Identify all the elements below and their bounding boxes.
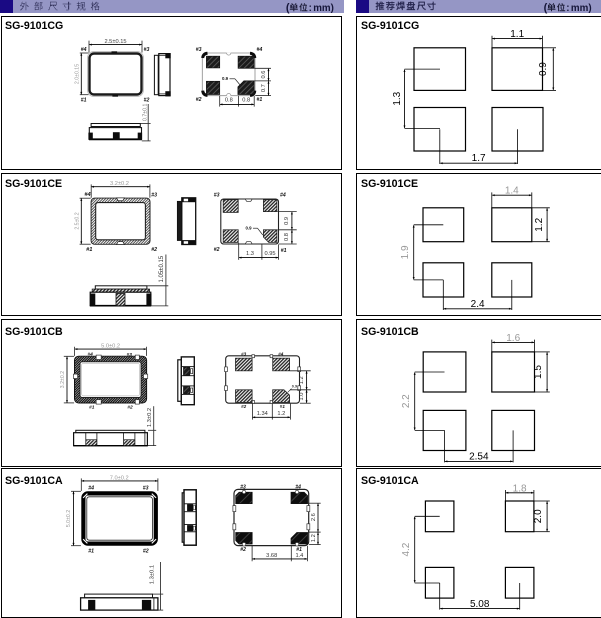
svg-text::: : [566,3,569,14]
svg-text:#1: #1 [88,548,94,554]
svg-text:0.9: 0.9 [222,76,229,81]
svg-text:1.9: 1.9 [400,245,411,259]
svg-text:1.2: 1.2 [299,376,305,384]
svg-text:#3: #3 [240,485,246,491]
svg-text:#3: #3 [151,192,157,198]
svg-text:mm): mm) [313,3,334,14]
svg-text:#2: #2 [241,404,247,409]
svg-text:3.2±0.2: 3.2±0.2 [110,181,129,187]
svg-text:#4: #4 [280,192,286,198]
svg-text:#4: #4 [88,486,94,492]
svg-text:2.54: 2.54 [469,452,489,463]
svg-text:#4: #4 [81,47,87,53]
svg-text:5.08: 5.08 [470,599,490,610]
svg-text:5.0±0.2: 5.0±0.2 [66,510,72,527]
svg-text:#2: #2 [240,547,246,553]
svg-text:1.3±0.2: 1.3±0.2 [147,408,153,427]
svg-text:1.5: 1.5 [533,365,544,379]
svg-text:#1: #1 [89,404,95,410]
svg-text:2.2: 2.2 [401,394,412,408]
svg-text:1.1: 1.1 [510,29,524,40]
svg-text:0.9: 0.9 [284,217,290,225]
svg-text:0.6: 0.6 [261,71,267,79]
svg-text:#2: #2 [214,247,220,253]
svg-text:1.6: 1.6 [506,333,520,344]
svg-text:#4: #4 [257,47,263,53]
svg-text:#2: #2 [144,98,150,104]
svg-text:0.95: 0.95 [264,251,275,257]
svg-text:#3: #3 [241,352,247,357]
svg-text:0.8: 0.8 [242,98,250,104]
svg-text:#4: #4 [88,352,94,358]
svg-text:#1: #1 [81,98,87,104]
svg-text:#2: #2 [127,404,133,410]
svg-text:0.9: 0.9 [538,62,549,76]
svg-text:1.34: 1.34 [257,411,268,417]
svg-text:0.7±0.1: 0.7±0.1 [142,104,148,121]
svg-text:1.05±0.15: 1.05±0.15 [159,255,165,282]
svg-text:0.9: 0.9 [292,385,297,389]
svg-text:1.4: 1.4 [295,553,303,559]
svg-text:1.2: 1.2 [277,411,285,417]
svg-text:(: ( [286,2,290,14]
svg-text:0.8: 0.8 [225,98,233,104]
svg-text:#1: #1 [86,247,92,253]
svg-text:#2: #2 [143,548,149,554]
svg-text:#3: #3 [196,47,202,53]
svg-text:2.4: 2.4 [471,299,485,310]
svg-text:mm): mm) [571,3,592,14]
svg-text:#1: #1 [281,248,287,254]
svg-text:#3: #3 [214,192,220,198]
svg-text:#3: #3 [144,47,150,53]
svg-text:1.0: 1.0 [299,393,305,401]
svg-text:5.0±0.2: 5.0±0.2 [101,344,120,350]
svg-text:1.7: 1.7 [472,153,486,164]
svg-text:2.6: 2.6 [311,513,317,521]
svg-text:#4: #4 [295,485,301,491]
svg-text:0.7: 0.7 [261,84,267,92]
svg-text:#2: #2 [196,97,202,103]
svg-text:2.5±0.15: 2.5±0.15 [104,39,126,45]
svg-text:4.2: 4.2 [401,542,412,556]
svg-text:#4: #4 [84,192,91,198]
svg-text:#3: #3 [143,486,149,492]
svg-text:0.9: 0.9 [246,225,253,230]
svg-text:1.8: 1.8 [513,483,527,494]
svg-text:(: ( [544,2,548,14]
svg-text:#3: #3 [127,352,133,358]
svg-text:#2: #2 [151,247,157,253]
svg-text:#4: #4 [278,352,284,357]
svg-text::: : [309,3,312,14]
svg-text:3.68: 3.68 [266,553,277,559]
svg-text:0.8: 0.8 [284,233,290,241]
svg-text:1.4: 1.4 [505,186,519,197]
svg-text:2.5±0.2: 2.5±0.2 [74,212,80,229]
svg-text:1.2: 1.2 [534,217,545,231]
svg-text:#1: #1 [257,97,263,103]
svg-text:2.0±0.15: 2.0±0.15 [74,64,80,84]
svg-text:7.0±0.2: 7.0±0.2 [110,475,129,481]
svg-text:3.2±0.2: 3.2±0.2 [60,371,66,388]
svg-text:2.0: 2.0 [533,509,544,523]
svg-text:1.3: 1.3 [392,91,403,105]
svg-text:#1: #1 [280,404,286,409]
svg-text:1.3±0.1: 1.3±0.1 [150,565,156,584]
svg-text:1.3: 1.3 [246,251,254,257]
svg-text:1.2: 1.2 [311,534,317,542]
